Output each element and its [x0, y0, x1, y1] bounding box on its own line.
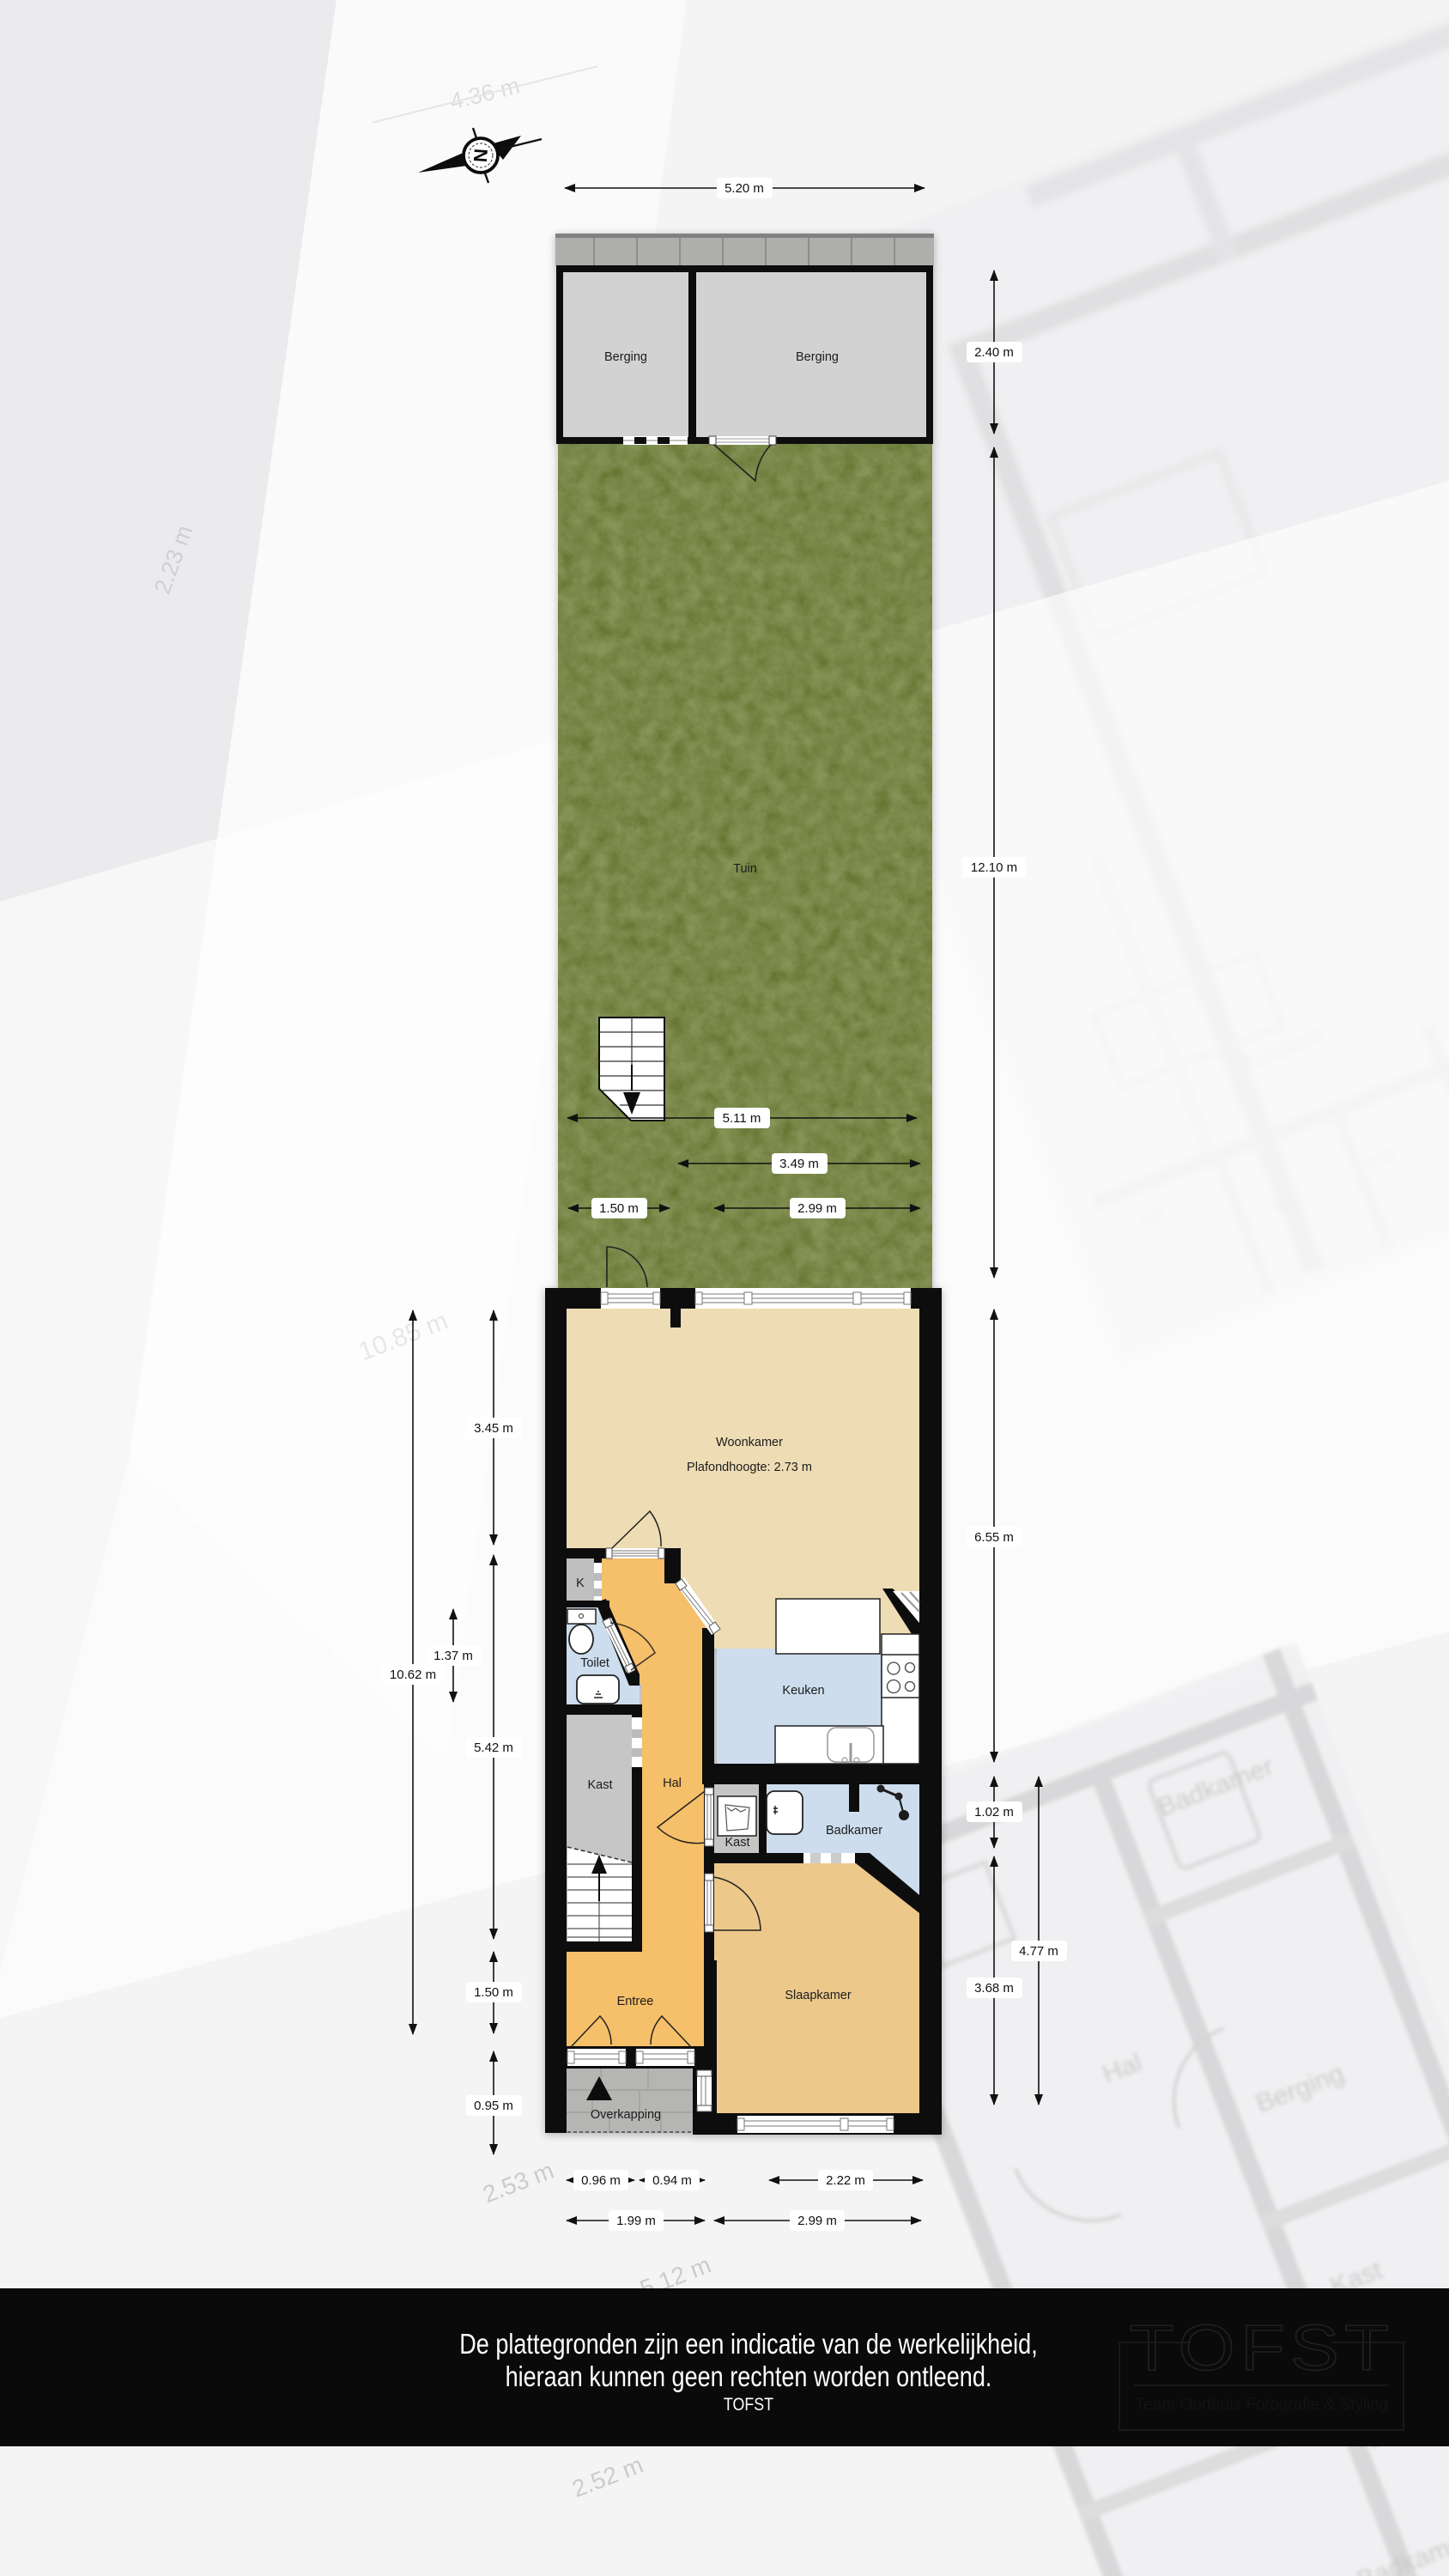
svg-text:Overkapping: Overkapping — [591, 2108, 661, 2122]
svg-text:2.99 m: 2.99 m — [797, 1201, 837, 1216]
svg-text:1.02 m: 1.02 m — [974, 1805, 1014, 1820]
svg-text:4.77 m: 4.77 m — [1019, 1944, 1058, 1959]
svg-text:6.55 m: 6.55 m — [974, 1530, 1014, 1545]
svg-text:0.96 m: 0.96 m — [581, 2173, 621, 2188]
svg-text:Badkamer: Badkamer — [826, 1824, 882, 1838]
svg-text:1.37 m: 1.37 m — [433, 1649, 473, 1663]
svg-text:Kast: Kast — [587, 1778, 612, 1792]
svg-text:Berging: Berging — [604, 350, 647, 364]
svg-text:1.50 m: 1.50 m — [474, 1985, 513, 2000]
svg-text:3.49 m: 3.49 m — [779, 1157, 819, 1171]
svg-text:Entree: Entree — [617, 1995, 654, 2008]
svg-text:12.10 m: 12.10 m — [971, 860, 1017, 875]
svg-text:De plattegronden zijn een indi: De plattegronden zijn een indicatie van … — [459, 2330, 1037, 2360]
svg-text:Keuken: Keuken — [782, 1684, 824, 1698]
svg-text:Berging: Berging — [796, 350, 839, 364]
svg-text:5.11 m: 5.11 m — [723, 1111, 761, 1126]
svg-text:5.42 m: 5.42 m — [474, 1741, 513, 1755]
svg-text:Slaapkamer: Slaapkamer — [785, 1989, 852, 2002]
svg-text:TOFST: TOFST — [1130, 2312, 1394, 2384]
svg-text:Plafondhoogte: 2.73 m: Plafondhoogte: 2.73 m — [687, 1461, 812, 1474]
svg-text:2.22 m: 2.22 m — [826, 2173, 865, 2188]
svg-text:Kast: Kast — [724, 1836, 749, 1850]
svg-text:3.45 m: 3.45 m — [474, 1421, 513, 1436]
svg-text:K: K — [576, 1577, 585, 1590]
svg-text:hieraan kunnen geen rechten wo: hieraan kunnen geen rechten worden ontle… — [506, 2362, 992, 2393]
svg-text:Team Oorthuis Fotografie & Sty: Team Oorthuis Fotografie & Styling — [1136, 2396, 1389, 2414]
svg-text:5.20 m: 5.20 m — [724, 181, 764, 196]
svg-text:N: N — [470, 148, 492, 163]
svg-text:2.99 m: 2.99 m — [797, 2214, 837, 2228]
svg-text:Hal: Hal — [663, 1777, 682, 1790]
svg-text:1.99 m: 1.99 m — [616, 2214, 656, 2228]
svg-text:TOFST: TOFST — [724, 2395, 773, 2415]
svg-text:0.94 m: 0.94 m — [652, 2173, 692, 2188]
svg-text:0.95 m: 0.95 m — [474, 2099, 513, 2113]
svg-text:Tuin: Tuin — [733, 862, 757, 876]
svg-text:2.40 m: 2.40 m — [974, 345, 1014, 360]
svg-text:10.62 m: 10.62 m — [390, 1668, 436, 1682]
svg-text:3.68 m: 3.68 m — [974, 1981, 1014, 1996]
svg-text:Woonkamer: Woonkamer — [716, 1436, 783, 1449]
svg-text:1.50 m: 1.50 m — [599, 1201, 639, 1216]
svg-text:Toilet: Toilet — [580, 1656, 609, 1670]
